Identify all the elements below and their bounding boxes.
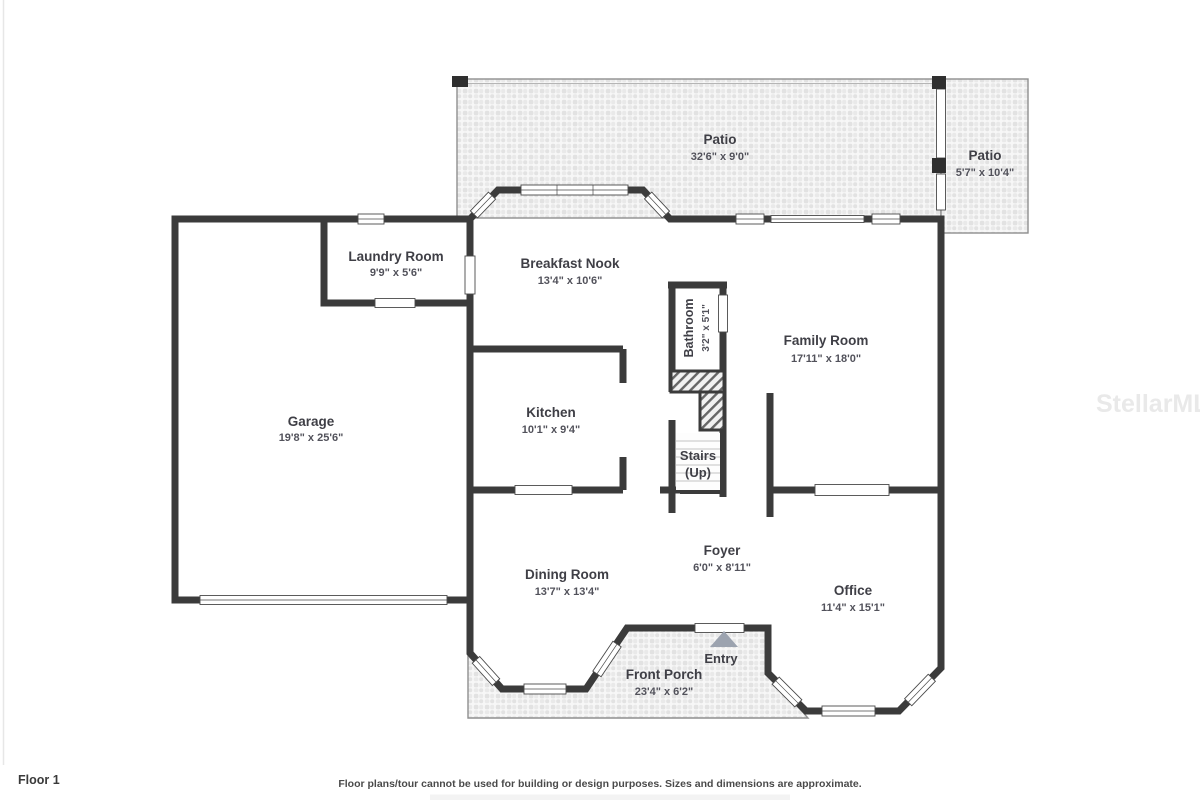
room-label-stairs: Stairs (680, 448, 716, 463)
room-dims-bathroom: 3'2" x 5'1" (701, 304, 712, 352)
patio-post (932, 158, 946, 173)
room-dims-breakfast: 13'4" x 10'6" (538, 275, 603, 287)
room-label-foyer: Foyer (704, 543, 742, 558)
disclaimer-text: Floor plans/tour cannot be used for buil… (338, 778, 861, 790)
room-dims-dining: 13'7" x 13'4" (535, 586, 600, 598)
window (905, 674, 936, 705)
door-opening (815, 485, 889, 496)
patio-post (932, 76, 946, 89)
room-label-bathroom: Bathroom (682, 298, 696, 357)
room-dims-garage: 19'8" x 25'6" (279, 432, 344, 444)
room-label-breakfast: Breakfast Nook (520, 256, 620, 271)
hatched-chase (671, 371, 724, 430)
room-label-stairs-dir: (Up) (685, 465, 711, 480)
window (358, 214, 384, 224)
floor-label: Floor 1 (18, 773, 60, 787)
window (736, 214, 764, 224)
sliding-door (771, 216, 864, 223)
room-label-porch: Front Porch (626, 667, 703, 682)
garage-door (200, 596, 447, 605)
room-label-patio-main: Patio (703, 132, 736, 147)
room-label-laundry: Laundry Room (348, 249, 443, 264)
window (872, 214, 900, 224)
room-dims-foyer: 6'0" x 8'11" (693, 562, 751, 574)
patio-divider-screen (937, 89, 946, 158)
floor-plan-svg: Patio 32'6" x 9'0" Patio 5'7" x 10'4" La… (0, 0, 1200, 800)
room-label-family: Family Room (784, 333, 869, 348)
room-dims-porch: 23'4" x 6'2" (635, 686, 693, 698)
room-dims-family: 17'11" x 18'0" (791, 353, 861, 365)
room-dims-patio-side: 5'7" x 10'4" (956, 167, 1014, 179)
door-opening (515, 486, 572, 495)
patio-divider-screen-2 (937, 174, 946, 210)
room-dims-laundry: 9'9" x 5'6" (370, 267, 422, 279)
room-dims-kitchen: 10'1" x 9'4" (522, 424, 580, 436)
window (822, 706, 875, 716)
room-label-dining: Dining Room (525, 567, 609, 582)
entry-door-opening (695, 624, 744, 633)
door-opening (465, 256, 475, 294)
window (719, 295, 728, 332)
window (524, 684, 566, 694)
room-dims-patio-main: 32'6" x 9'0" (691, 151, 749, 163)
door-opening (375, 299, 415, 308)
window (521, 185, 628, 195)
floor-plan-page: Patio 32'6" x 9'0" Patio 5'7" x 10'4" La… (0, 0, 1200, 800)
room-label-patio-side: Patio (968, 148, 1001, 163)
room-label-entry: Entry (704, 651, 738, 666)
room-label-garage: Garage (288, 414, 335, 429)
stellar-mls-watermark: StellarMLS (1096, 390, 1200, 418)
patio-main-area (457, 79, 941, 218)
patio-post (452, 76, 468, 87)
cutoff-bottom-artifact (430, 795, 790, 800)
room-label-office: Office (834, 583, 873, 598)
room-label-kitchen: Kitchen (526, 405, 576, 420)
room-dims-office: 11'4" x 15'1" (821, 602, 885, 614)
